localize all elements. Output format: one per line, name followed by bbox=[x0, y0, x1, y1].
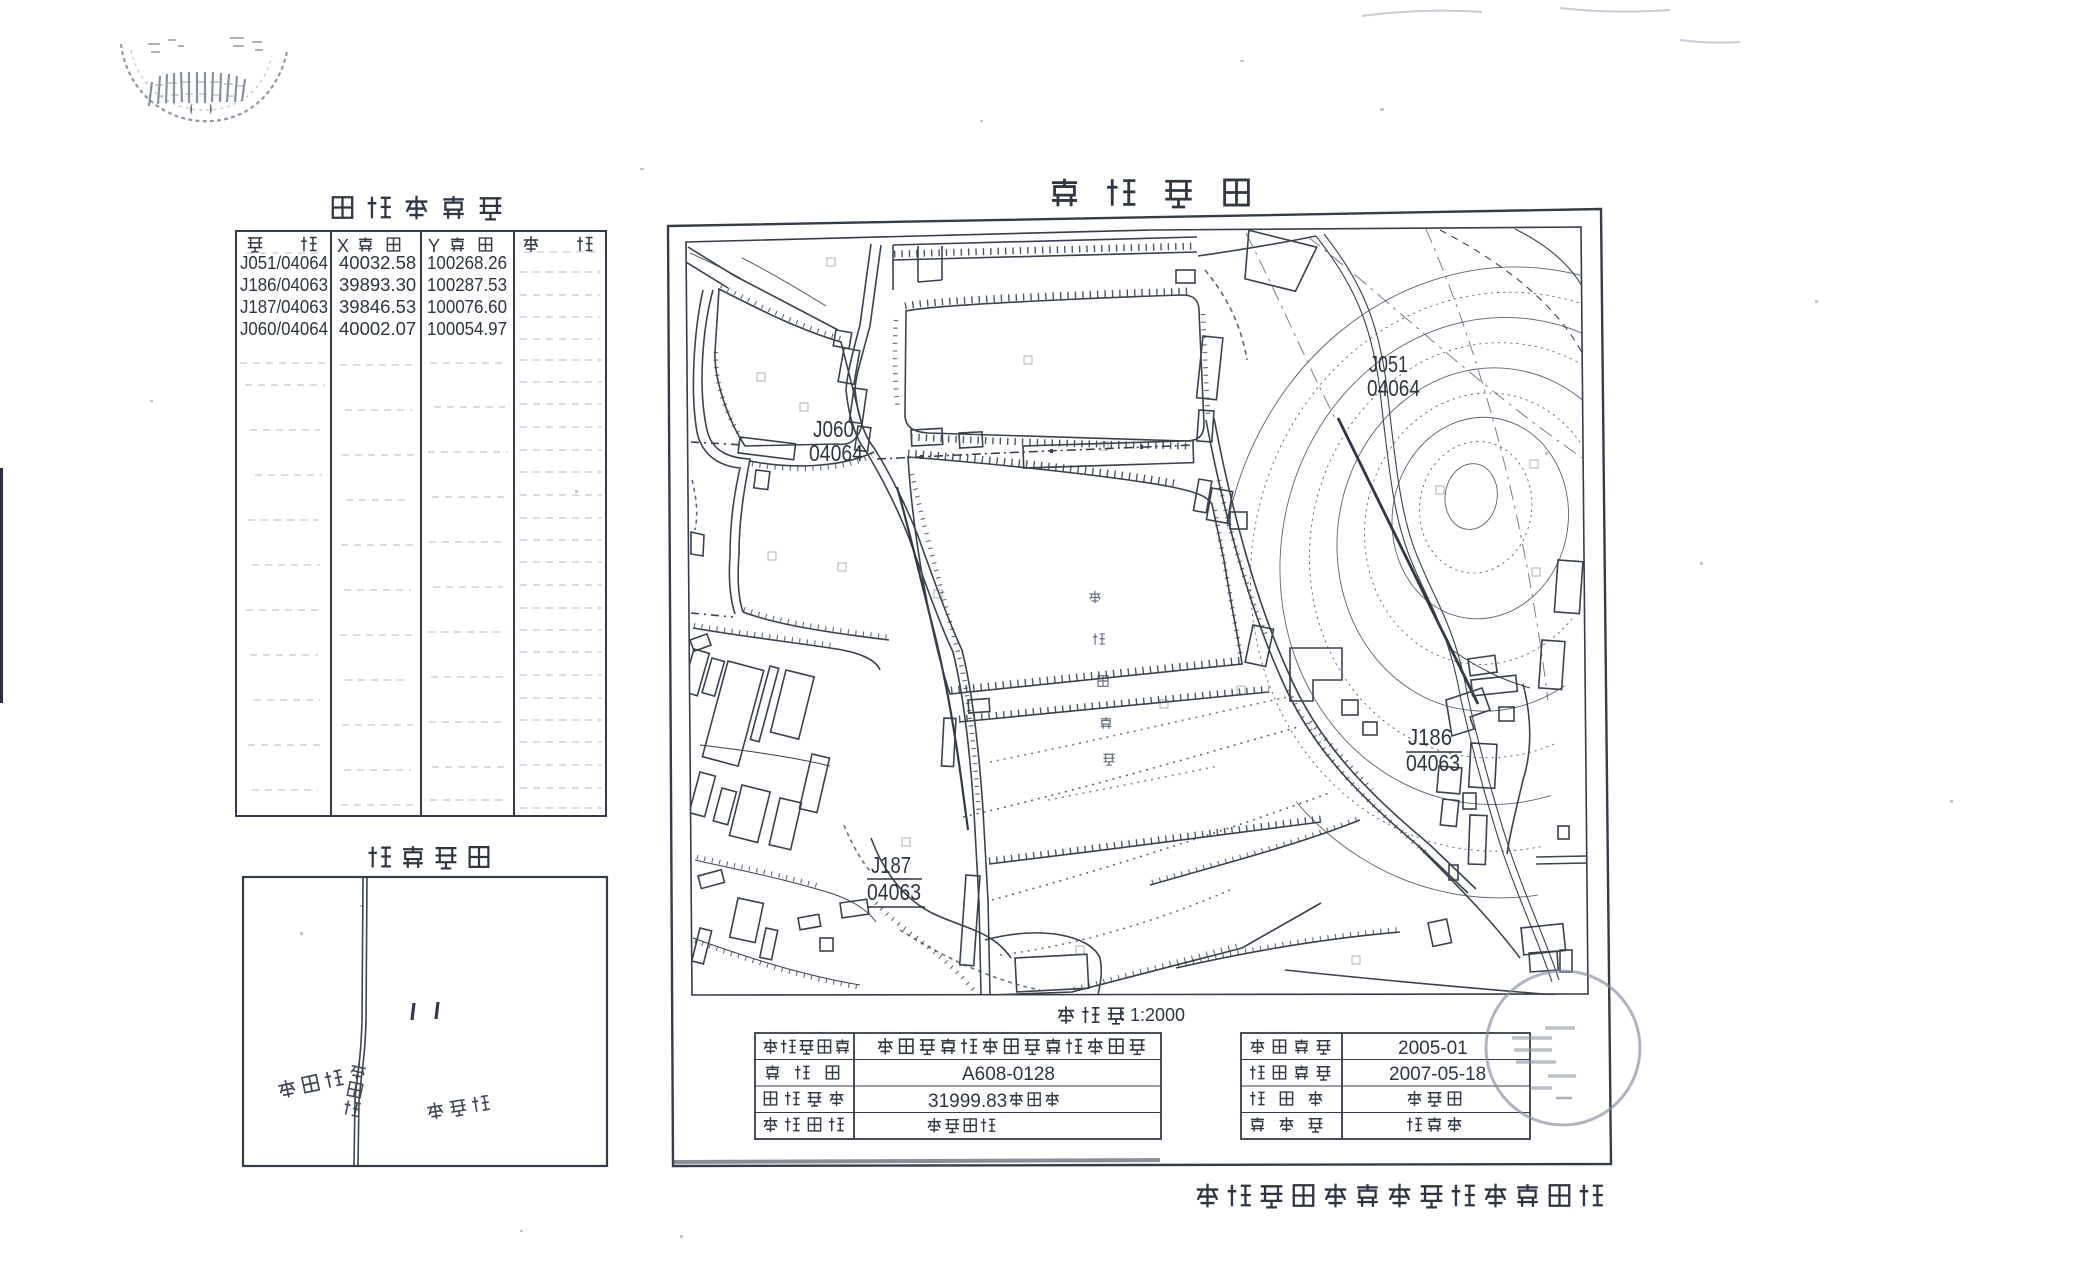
svg-text:100268.26: 100268.26 bbox=[427, 252, 507, 273]
svg-text:39893.30: 39893.30 bbox=[339, 274, 416, 295]
svg-text:J187: J187 bbox=[871, 852, 911, 878]
svg-text:J186: J186 bbox=[1408, 724, 1452, 750]
svg-text:39846.53: 39846.53 bbox=[339, 296, 416, 317]
svg-text:A608-0128: A608-0128 bbox=[962, 1064, 1055, 1085]
svg-text:J187/04063: J187/04063 bbox=[240, 296, 328, 317]
svg-text:2007-05-18: 2007-05-18 bbox=[1389, 1064, 1486, 1085]
svg-text:2005-01: 2005-01 bbox=[1398, 1038, 1468, 1059]
svg-text:04064: 04064 bbox=[809, 440, 863, 466]
svg-text:: 1:2000: : 1:2000 bbox=[1120, 1005, 1185, 1025]
svg-text:100054.97: 100054.97 bbox=[427, 318, 507, 339]
svg-text:04063: 04063 bbox=[867, 879, 921, 905]
svg-text:100287.53: 100287.53 bbox=[427, 274, 507, 295]
svg-text:J051/04064: J051/04064 bbox=[240, 252, 328, 273]
svg-text:31999.83: 31999.83 bbox=[928, 1091, 1007, 1112]
svg-text:J051: J051 bbox=[1369, 351, 1408, 377]
svg-text:100076.60: 100076.60 bbox=[427, 296, 507, 317]
svg-text:04064: 04064 bbox=[1367, 375, 1420, 401]
svg-text:04063: 04063 bbox=[1406, 750, 1460, 776]
svg-text:40032.58: 40032.58 bbox=[339, 252, 416, 273]
svg-text:J060/04064: J060/04064 bbox=[240, 318, 328, 339]
svg-text:40002.07: 40002.07 bbox=[339, 318, 416, 339]
svg-text:J186/04063: J186/04063 bbox=[240, 274, 328, 295]
svg-text:J060: J060 bbox=[813, 416, 854, 442]
